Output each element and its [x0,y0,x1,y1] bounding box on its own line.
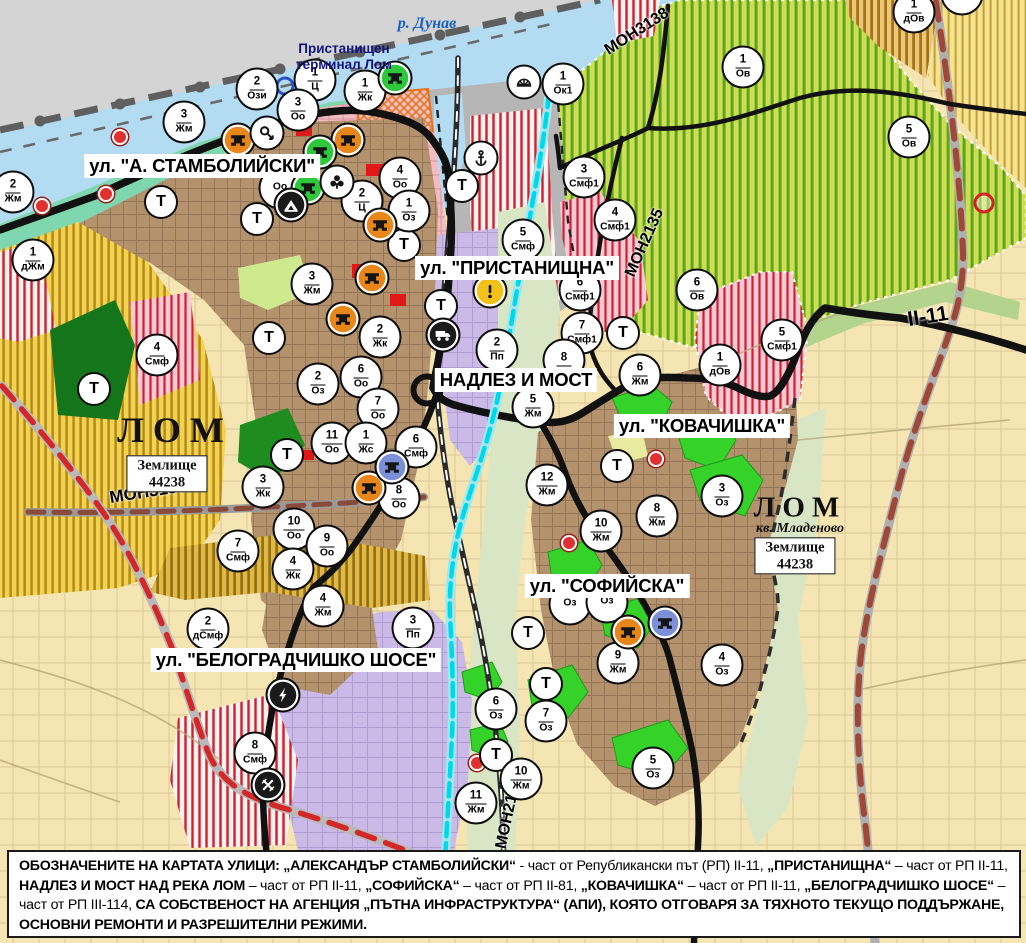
transport-zone-marker[interactable]: Т [144,185,178,219]
anchor-icon[interactable] [464,141,499,176]
zone-marker-10-Жм[interactable]: 10Жм [500,758,543,801]
zone-marker-x-дОв[interactable]: дОв [941,0,984,16]
red-ring [974,193,995,214]
port-terminal-label: Пристанищен терминал Лом [296,41,392,73]
zone-marker-3-Жм[interactable]: 3Жм [291,263,334,306]
transport-zone-marker[interactable]: Т [606,316,640,350]
city-label-lom-mladenovo: ЛОМ [754,492,847,525]
zone-marker-11-Жм[interactable]: 11Жм [455,782,498,825]
zone-marker-4-Жк[interactable]: 4Жк [272,548,315,591]
zone-marker-3-Жк[interactable]: 3Жк [242,466,285,509]
monument-icon[interactable] [326,302,361,337]
truck-icon[interactable] [426,318,461,353]
zone-marker-1-дЖм[interactable]: 1дЖм [12,239,55,282]
transport-zone-marker[interactable]: Т [600,449,634,483]
street-label-1: ул. "ПРИСТАНИЩНА" [415,256,619,280]
monument-icon[interactable] [648,606,683,641]
zone-marker-2-Жм[interactable]: 2Жм [0,171,35,214]
city-label-lom: ЛОМ [117,409,233,451]
transport-zone-marker[interactable]: Т [77,372,111,406]
note-segment: „СОФИЙСКА“ [365,878,459,894]
zone-marker-2-Пп[interactable]: 2Пп [476,329,519,372]
road-number-label-1: МОН3138 [602,5,673,60]
zone-marker-4-Оз[interactable]: 4Оз [701,644,744,687]
land-plot-number: 44238 [137,474,196,491]
zone-marker-4-Жм[interactable]: 4Жм [302,585,345,628]
zone-marker-1-Ок1[interactable]: 1Ок1 [542,63,585,106]
zone-marker-3-Жм[interactable]: 3Жм [163,101,206,144]
sunrise-icon[interactable] [507,65,542,100]
transport-zone-marker[interactable]: Т [270,438,304,472]
zone-marker-5-Смф1[interactable]: 5Смф1 [761,319,804,362]
lightning-icon[interactable] [266,678,301,713]
land-plot-word: Землище [137,457,196,474]
monument-icon[interactable] [355,261,390,296]
note-segment: „ПРИСТАНИЩНА“ [767,858,891,874]
note-segment: НАДЛЕЗ И МОСТ НАД РЕКА ЛОМ [19,878,245,894]
street-label-5: ул. "БЕЛОГРАДЧИШКО ШОСЕ" [151,648,441,672]
land-plot-word: Землище [765,539,824,556]
zone-marker-7-Оз[interactable]: 7Оз [525,700,568,743]
monument-icon[interactable] [611,615,646,650]
map-canvas[interactable]: р. Дунав Пристанищен терминал Лом ЛОМ Зе… [0,0,1026,943]
monument-icon[interactable] [375,450,410,485]
key-icon[interactable] [250,116,285,151]
red-dot [112,129,128,145]
zone-marker-10-Жм[interactable]: 10Жм [580,510,623,553]
note-segment: „КОВАЧИШКА“ [581,878,684,894]
street-label-4: ул. "СОФИЙСКА" [525,574,690,598]
land-plot-box-right: Землище 44238 [754,537,835,574]
zone-marker-6-Жм[interactable]: 6Жм [619,354,662,397]
zone-marker-5-Оз[interactable]: 5Оз [632,747,675,790]
cave-icon[interactable] [274,188,309,223]
quarter-mladenovo-label: кв. Младеново [756,521,844,537]
zone-marker-3-Пп[interactable]: 3Пп [392,607,435,650]
street-label-2: НАДЛЕЗ И МОСТ [435,368,597,392]
transport-zone-marker[interactable]: Т [511,616,545,650]
zone-marker-3-Смф1[interactable]: 3Смф1 [563,156,606,199]
zone-marker-3-Оз[interactable]: 3Оз [701,475,744,518]
zone-marker-1-дОв[interactable]: 1дОв [893,0,936,34]
river-danube-label: р. Дунав [398,15,456,33]
red-dot [648,451,664,467]
port-terminal-line1: Пристанищен [296,41,392,57]
zone-marker-1-Ов[interactable]: 1Ов [722,46,765,89]
legend-note: ОБОЗНАЧЕНИТЕ НА КАРТАТА УЛИЦИ: „АЛЕКСАНД… [7,850,1021,938]
zone-marker-2-дСмф[interactable]: 2дСмф [187,608,230,651]
red-dot [98,186,114,202]
zone-marker-2-Жк[interactable]: 2Жк [359,316,402,359]
note-segment: „БЕЛОГРАДЧИШКО ШОСЕ“ [804,878,994,894]
zone-marker-4-Смф[interactable]: 4Смф [136,334,179,377]
note-segment: – част от РП II-81, [459,878,580,894]
zone-marker-8-Жм[interactable]: 8Жм [636,495,679,538]
note-segment: – част от РП II-11, [684,878,804,894]
zone-marker-12-Жм[interactable]: 12Жм [526,464,569,507]
zone-marker-1-дОв[interactable]: 1дОв [699,344,742,387]
note-segment: – част от РП II-11, [891,858,1008,874]
note-segment: СА СОБСТВЕНОСТ НА АГЕНЦИЯ „ПЪТНА ИНФРАСТ… [19,897,1004,933]
street-label-0: ул. "А. СТАМБОЛИЙСКИ" [84,154,320,178]
rail-crossing-icon[interactable] [251,768,286,803]
zone-marker-7-Смф[interactable]: 7Смф [217,530,260,573]
street-label-3: ул. "КОВАЧИШКА" [614,414,790,438]
trefoil-icon[interactable] [320,165,355,200]
road-number-label-4: II-11 [906,302,950,332]
land-plot-box-left: Землище 44238 [126,455,207,492]
zone-marker-6-Ов[interactable]: 6Ов [676,269,719,312]
zone-marker-2-Оз[interactable]: 2Оз [297,363,340,406]
note-segment: ОБОЗНАЧЕНИТЕ НА КАРТАТА УЛИЦИ: „АЛЕКСАНД… [19,858,516,874]
zone-marker-2-Ози[interactable]: 2Ози [236,68,279,111]
land-plot-number: 44238 [765,556,824,573]
zone-marker-4-Смф1[interactable]: 4Смф1 [594,199,637,242]
zone-marker-6-Оз[interactable]: 6Оз [475,688,518,731]
transport-zone-marker[interactable]: Т [252,321,286,355]
monument-icon[interactable] [363,208,398,243]
red-dot [561,535,577,551]
transport-zone-marker[interactable]: Т [529,667,563,701]
note-segment: – част от РП II-11, [245,878,365,894]
red-dot [34,198,50,214]
note-segment: - част от Републикански път (РП) II-11, [516,858,767,874]
zone-marker-5-Ов[interactable]: 5Ов [888,116,931,159]
transport-zone-marker[interactable]: Т [240,202,274,236]
port-terminal-line2: терминал Лом [296,57,392,73]
